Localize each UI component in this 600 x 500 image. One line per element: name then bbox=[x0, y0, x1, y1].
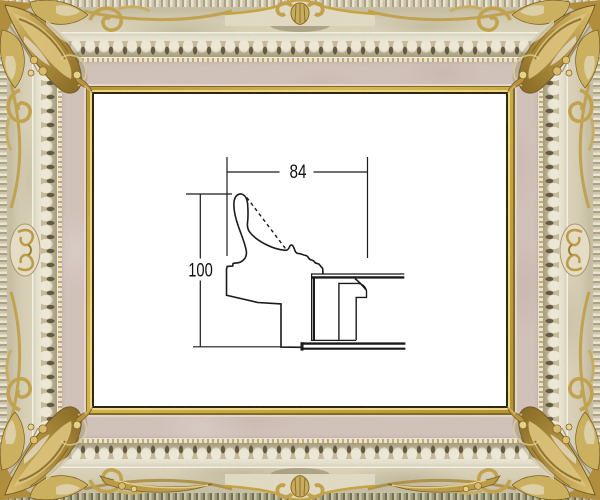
svg-text:84: 84 bbox=[290, 161, 307, 183]
svg-text:100: 100 bbox=[188, 260, 213, 282]
